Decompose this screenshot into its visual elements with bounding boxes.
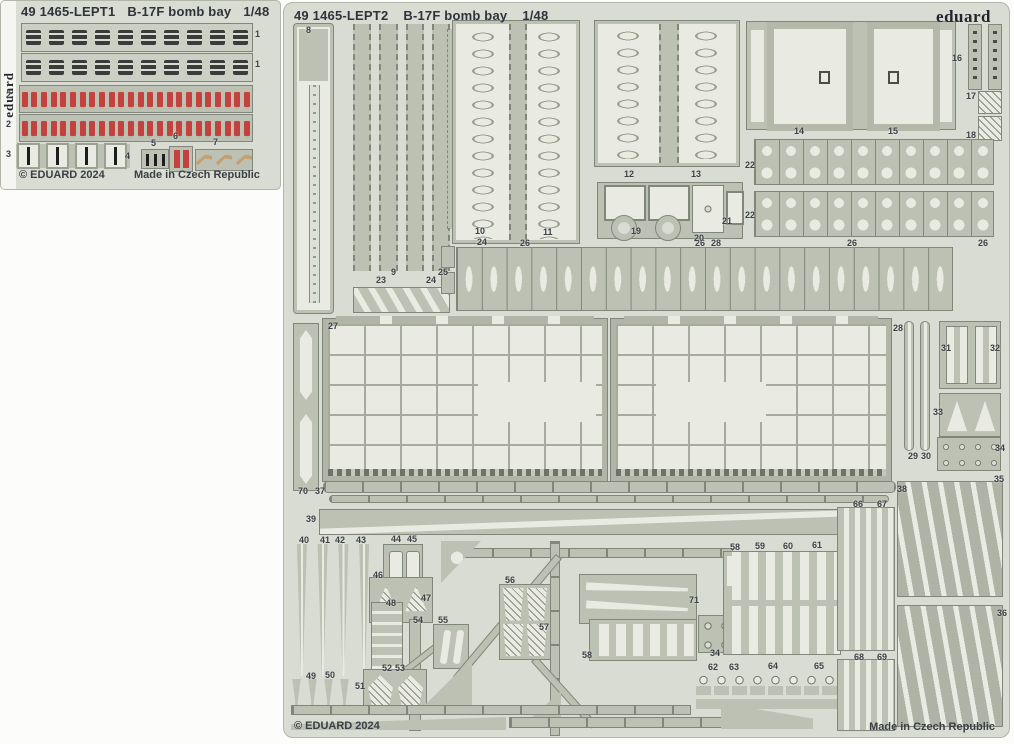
grid-blank-cell <box>656 382 766 422</box>
buckle-part <box>95 30 110 45</box>
beam-horizontal <box>453 548 733 558</box>
buckle-part <box>210 60 225 75</box>
blade <box>294 544 310 676</box>
part-21-bracket <box>726 191 744 225</box>
eduard-logo-vertical: eduard <box>1 1 16 189</box>
part-27-sidewall-grid <box>323 319 607 481</box>
buckle-part <box>49 30 64 45</box>
serrated-rail <box>379 24 397 271</box>
part-19-ring <box>656 216 680 240</box>
part-number-label: 23 <box>376 276 386 285</box>
red-part <box>196 121 202 136</box>
red-part <box>99 121 105 136</box>
eduard-logo: eduard <box>936 7 991 27</box>
part-16-straps <box>968 24 1002 90</box>
part-28-sidewall-grid <box>611 319 891 481</box>
triangle-slot <box>945 398 969 434</box>
part-31-32-brackets <box>939 321 1001 389</box>
blade-slot <box>440 630 452 665</box>
red-part <box>167 92 173 107</box>
buckle-part <box>118 30 133 45</box>
door-mark <box>819 71 830 84</box>
red-part <box>234 92 240 107</box>
part-35-curved-blades <box>897 481 1003 597</box>
tapered-slot <box>586 600 688 613</box>
red-part <box>157 92 163 107</box>
part-number-label: 30 <box>921 452 931 461</box>
fret-sheet-lept2: 49 1465-LEPT2 B-17F bomb bay 1/48 eduard <box>283 2 1010 738</box>
part-14-15-doors <box>746 21 956 130</box>
red-part <box>138 92 144 107</box>
fan-part <box>714 671 729 695</box>
pointed-slot <box>298 414 314 484</box>
part-10-11-panel <box>453 21 579 243</box>
door-side-slot <box>751 30 764 122</box>
catalog-number: 49 1465-LEPT1 <box>21 4 115 19</box>
fan-part <box>750 671 765 695</box>
fan-part <box>732 671 747 695</box>
web-trapezoid <box>527 588 548 621</box>
part-number-label: 60 <box>783 542 793 551</box>
red-part <box>109 121 115 136</box>
red-part <box>60 121 66 136</box>
red-part <box>80 92 86 107</box>
part-14-door <box>767 22 853 131</box>
part-20-mount <box>692 185 724 233</box>
center-rail <box>509 24 527 240</box>
door-side-slot <box>940 30 952 122</box>
part-22-rib-strip <box>754 191 994 237</box>
fan-part <box>822 671 837 695</box>
gusset-plate <box>441 541 481 583</box>
blade <box>336 544 352 676</box>
grid-bottom-rail <box>328 469 602 476</box>
part-8-catwalk-frame <box>294 24 333 313</box>
red-part <box>157 121 163 136</box>
buckle-part <box>72 30 87 45</box>
clip-parts-group <box>17 143 127 169</box>
buckle-part <box>49 60 64 75</box>
buckle-part <box>164 60 179 75</box>
red-parts-strip-row-2 <box>19 114 253 142</box>
buckle-part <box>210 30 225 45</box>
bracket <box>441 246 455 268</box>
buckle-part <box>141 60 156 75</box>
hook-part <box>216 155 232 166</box>
part-25-brackets <box>441 246 455 296</box>
door-mark <box>888 71 899 84</box>
part-number-label: 64 <box>768 662 778 671</box>
bottom-strip <box>291 705 691 715</box>
red-part <box>147 92 153 107</box>
part-34-rings <box>937 437 1001 471</box>
sheet2-header: 49 1465-LEPT2 B-17F bomb bay 1/48 <box>294 8 548 23</box>
red-part <box>109 92 115 107</box>
brand-text: eduard <box>1 72 17 118</box>
tick-part <box>141 149 169 169</box>
part-number-label: 13 <box>691 170 701 179</box>
red-part <box>196 92 202 107</box>
red-part <box>128 121 134 136</box>
serrated-rail <box>406 24 424 271</box>
red-part <box>89 121 95 136</box>
blade <box>315 544 331 676</box>
serrated-rail <box>353 24 371 271</box>
web-trapezoid <box>527 624 548 657</box>
grid-tabs <box>336 316 594 324</box>
buckle-part <box>164 30 179 45</box>
part-number-label: 24 <box>426 276 436 285</box>
fan-part <box>786 671 801 695</box>
clip-part <box>104 143 127 169</box>
red-part <box>176 92 182 107</box>
slat-crossbar <box>724 600 840 606</box>
buckle-part <box>118 60 133 75</box>
part-number-label: 29 <box>908 452 918 461</box>
part-9-rails <box>353 24 450 271</box>
part-70-strip <box>293 323 319 491</box>
oval-slot-column <box>602 28 654 159</box>
part-number-label: 1 <box>255 60 260 69</box>
oval-slot-column <box>680 28 732 159</box>
web-trapezoid <box>503 588 524 621</box>
red-part <box>118 92 124 107</box>
photoetch-product-image: eduard 49 1465-LEPT1 B-17F bomb bay 1/48 <box>0 0 1014 744</box>
product-title: B-17F bomb bay <box>127 4 231 19</box>
blade-slot <box>453 630 465 665</box>
bracket <box>975 326 997 384</box>
grid-blank-cell <box>478 382 596 422</box>
red-part <box>31 92 37 107</box>
triangle-slot <box>973 398 997 434</box>
bracket <box>946 326 968 384</box>
product-title: B-17F bomb bay <box>403 8 507 23</box>
part-number-label: 26 <box>978 239 988 248</box>
buckle-strip-row-2 <box>21 53 253 82</box>
sheet1-header: 49 1465-LEPT1 B-17F bomb bay 1/48 <box>21 4 269 19</box>
red-part <box>167 121 173 136</box>
red-part <box>128 92 134 107</box>
scale: 1/48 <box>522 8 548 23</box>
part-62-65-fans <box>696 671 854 709</box>
web-trapezoid <box>503 624 524 657</box>
part-33-triangles <box>939 393 1001 437</box>
red-part <box>205 92 211 107</box>
hook-parts-strip <box>195 149 253 171</box>
red-part <box>80 121 86 136</box>
red-part <box>186 121 192 136</box>
red-part <box>41 92 47 107</box>
part-58-slot-frame <box>589 619 697 661</box>
fan-part <box>696 671 711 695</box>
buckle-part <box>26 60 41 75</box>
red-part <box>186 92 192 107</box>
part-number-label: 61 <box>812 541 822 550</box>
part-number-label: 12 <box>624 170 634 179</box>
part-number-label: 45 <box>407 535 417 544</box>
part-19-20-21-group <box>597 182 743 239</box>
red-part <box>138 121 144 136</box>
buckle-part <box>26 30 41 45</box>
part-71-plate <box>579 574 697 624</box>
buckle-part <box>72 60 87 75</box>
red-part <box>215 92 221 107</box>
part-8-top-block <box>299 29 328 81</box>
sheet2-made-in: Made in Czech Republic <box>869 721 995 733</box>
red-part <box>147 121 153 136</box>
strap <box>988 24 1002 90</box>
red-part <box>31 121 37 136</box>
pointed-slot <box>298 330 314 400</box>
part-number-label: 39 <box>306 515 316 524</box>
part-37-rail <box>323 481 896 493</box>
red-part <box>22 121 28 136</box>
buckle-strip-row-1 <box>21 23 253 52</box>
clip-part <box>46 143 69 169</box>
fan-part <box>768 671 783 695</box>
buckle-part <box>187 60 202 75</box>
red-parts-strip-row-1 <box>19 85 253 113</box>
slat-slot <box>727 556 741 586</box>
rail <box>904 321 914 451</box>
part-38-rail <box>329 495 889 503</box>
part-58-61-slats <box>723 551 841 655</box>
part-number-label: 65 <box>814 662 824 671</box>
part-15-door <box>867 22 940 131</box>
tapered-slot <box>586 582 688 594</box>
web-triangle <box>403 584 429 616</box>
red-part <box>174 150 180 168</box>
sheet2-copyright: © EDUARD 2024 <box>294 720 380 732</box>
part-number-label: 17 <box>966 92 976 101</box>
red-part <box>41 121 47 136</box>
part-39-tapered-skin <box>319 509 891 535</box>
red-part <box>51 92 57 107</box>
buckle-part <box>233 60 248 75</box>
grid-tabs <box>624 316 878 324</box>
part-8-catwalk <box>309 85 320 303</box>
part-22-rib-strip <box>754 139 994 185</box>
part-40-43-blades <box>294 544 372 676</box>
red-part <box>234 121 240 136</box>
part-56-57-webs <box>499 584 551 660</box>
center-rail <box>659 24 679 163</box>
red-part <box>51 121 57 136</box>
part-number-label: 59 <box>755 542 765 551</box>
part-36-curved-blades <box>897 605 1003 727</box>
rail <box>920 321 930 451</box>
part-17-web <box>978 91 1002 114</box>
oval-slot-column <box>527 29 571 239</box>
red-part <box>118 121 124 136</box>
red-part <box>89 92 95 107</box>
sheet1-copyright: © EDUARD 2024 <box>19 169 105 181</box>
buckle-part <box>187 30 202 45</box>
strap <box>968 24 982 90</box>
red-part <box>70 92 76 107</box>
part-66-67-slats <box>837 507 895 651</box>
red-part <box>183 150 189 168</box>
red-part <box>176 121 182 136</box>
clip-part <box>17 143 40 169</box>
part-number-label: 1 <box>255 30 260 39</box>
scale: 1/48 <box>243 4 269 19</box>
fret-sheet-lept1: eduard 49 1465-LEPT1 B-17F bomb bay 1/48 <box>0 0 281 190</box>
red-part <box>205 121 211 136</box>
bracket <box>441 272 455 294</box>
grid-bottom-rail <box>616 469 886 476</box>
catalog-number: 49 1465-LEPT2 <box>294 8 388 23</box>
sheet1-made-in: Made in Czech Republic <box>134 169 260 181</box>
clip-part <box>75 143 98 169</box>
part-26-slotted-strip <box>456 247 953 311</box>
red-part <box>70 121 76 136</box>
part-29-30-rails <box>904 321 930 451</box>
part-number-label: 28 <box>893 324 903 333</box>
buckle-part <box>233 30 248 45</box>
red-part <box>244 92 250 107</box>
part-number-label: 44 <box>391 535 401 544</box>
red-part <box>215 121 221 136</box>
hook-part <box>236 155 252 166</box>
buckle-part <box>95 60 110 75</box>
part-12-13-panel <box>595 21 739 166</box>
red-part <box>22 92 28 107</box>
part-23-angled-strip <box>353 287 450 313</box>
red-part <box>244 121 250 136</box>
part-19-ring <box>612 216 636 240</box>
part-18-web <box>978 116 1002 141</box>
hook-part <box>196 155 212 166</box>
buckle-part <box>141 30 156 45</box>
fan-part <box>804 671 819 695</box>
red-part <box>60 92 66 107</box>
oval-slot-column <box>461 29 505 239</box>
red-part <box>225 92 231 107</box>
red-part <box>99 92 105 107</box>
red-part <box>225 121 231 136</box>
